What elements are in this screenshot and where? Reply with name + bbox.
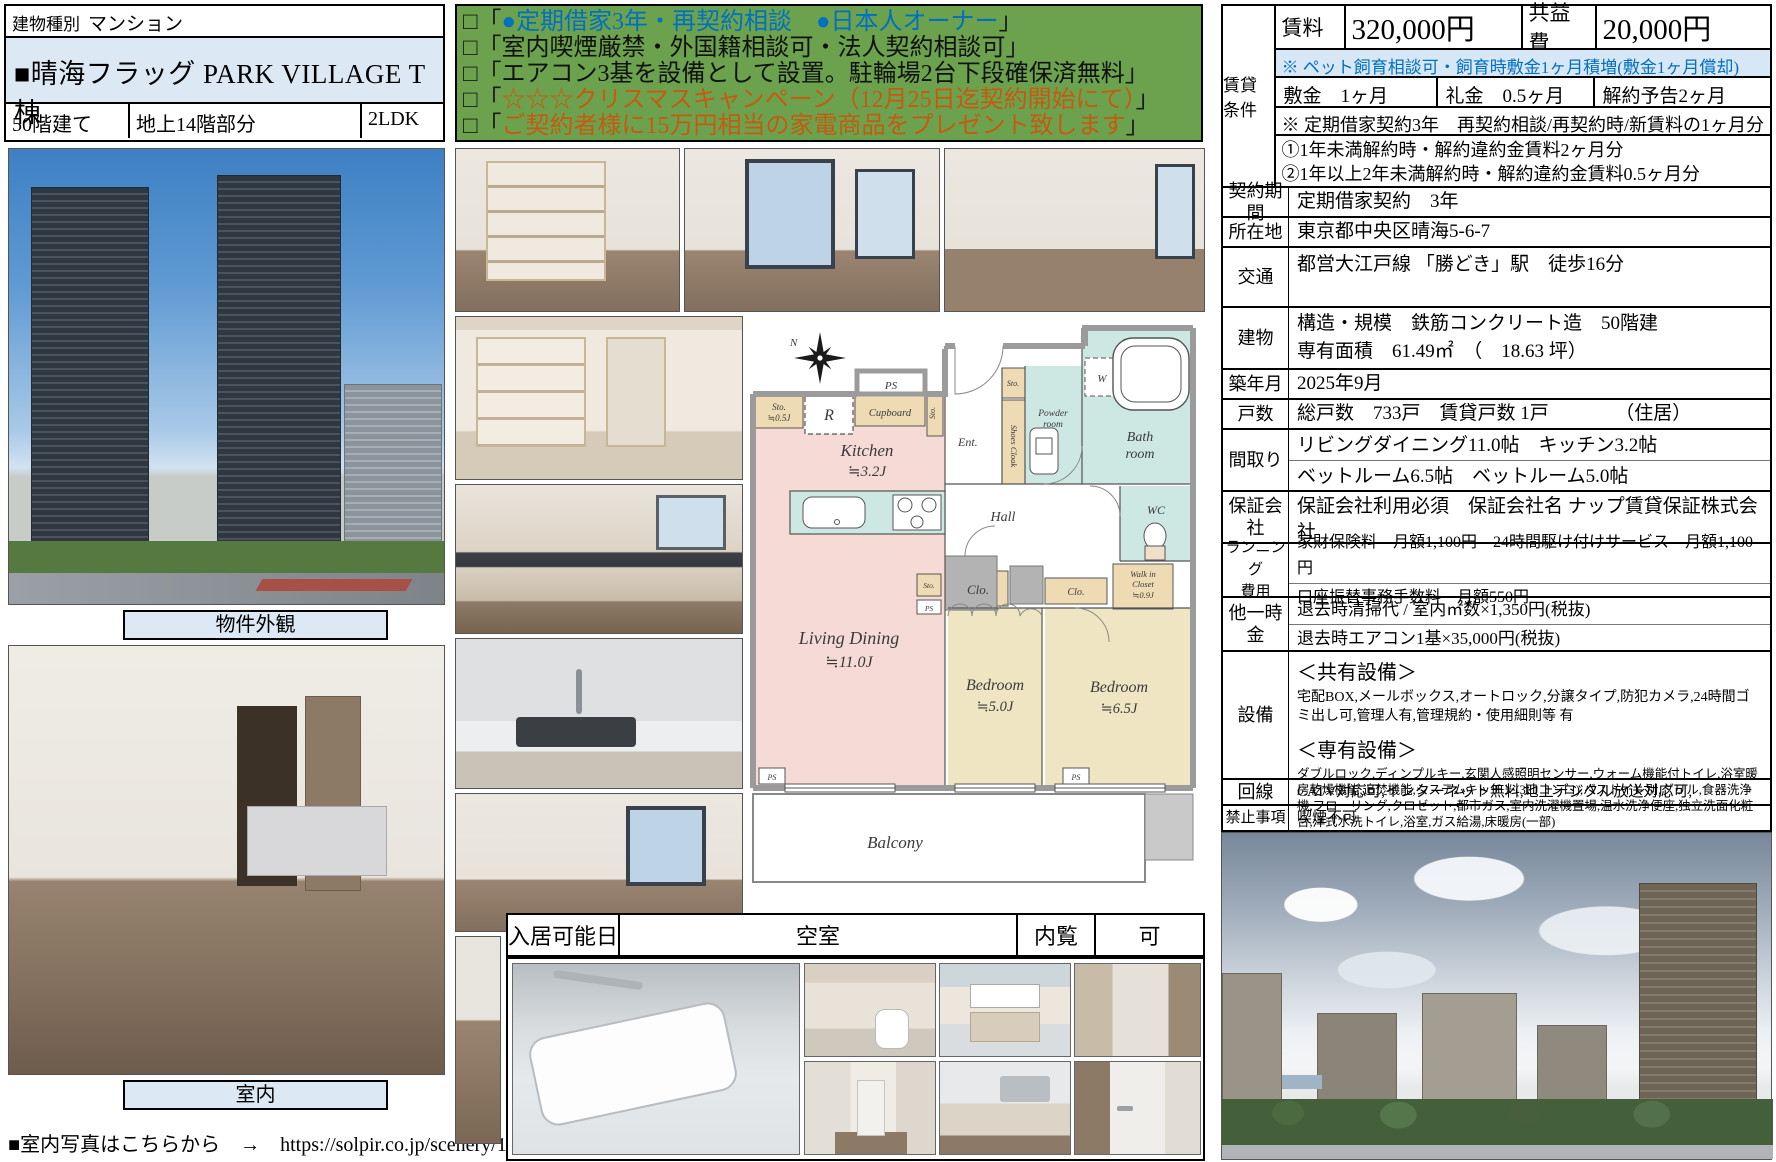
interior-photo: [8, 645, 445, 1075]
label-sto-entry: Sto.: [1007, 379, 1019, 388]
photo-toilet-room: [804, 963, 936, 1057]
row-building: 建物 構造・規模 鉄筋コンクリート造 50階建 専有面積 61.49㎡ （ 18…: [1223, 308, 1770, 370]
svg-text:≒6.5J: ≒6.5J: [1101, 701, 1138, 717]
svg-text:Closet: Closet: [1132, 579, 1154, 589]
row-address: 所在地 東京都中央区晴海5-6-7: [1223, 218, 1770, 248]
toilet: [875, 1009, 909, 1049]
promo-line-5: □「ご契約者様に15万円相当の家電商品をプレゼント致します」: [463, 113, 1195, 139]
kitchen-window: [656, 495, 726, 550]
window: [1155, 164, 1195, 259]
label-shoes-cloak: Shoes Cloak: [1009, 425, 1019, 467]
promo-line-4: □「☆☆☆クリスマスキャンペーン（12月25日迄契約開始にて）」: [463, 87, 1195, 113]
photo-closet: [455, 148, 680, 312]
tall-building: [1639, 883, 1757, 1101]
label-clo2: Clo.: [1068, 587, 1085, 598]
floor-plan: N PS Sto. ≒0.5J R Cupboard Sto. Kitchen …: [745, 316, 1197, 902]
label-ps-top: PS: [884, 380, 898, 392]
rent-value: 320,000円: [1346, 6, 1523, 48]
deposit-row: 敷金 1ヶ月 礼金 0.5ヶ月 解約予告2ヶ月: [1276, 78, 1771, 108]
pet-note: ※ ペット飼育相談可・飼育時敷金1ヶ月積増(敷金1ヶ月償却): [1276, 50, 1771, 78]
hall-door: [857, 1080, 885, 1136]
label-sto-mid: Sto.: [923, 581, 935, 590]
service-fee-label: 共益費: [1523, 6, 1597, 48]
label-wic: Walk in: [1130, 569, 1155, 579]
building-info-table: 建物種別マンション ■晴海フラッグ PARK VILLAGE T棟 50階建て …: [4, 4, 445, 142]
rental-conditions-table: 賃貸条件 賃料 320,000円 共益費 20,000円 ※ ペット飼育相談可・…: [1221, 4, 1772, 188]
viewing-label: 内覧: [1018, 915, 1096, 955]
row-units: 戸数 総戸数 733戸 賃貸戸数 1戸 （住居）: [1223, 400, 1770, 430]
promo-line-2: □「室内喫煙厳禁・外国籍相談可・法人契約相談可」: [463, 35, 1195, 61]
svg-text:≒3.2J: ≒3.2J: [848, 464, 887, 480]
label-w: W: [1097, 373, 1107, 385]
deposit: 敷金 1ヶ月: [1276, 78, 1438, 106]
renewal-note: ※ 定期借家契約3年 再契約相談/再契約時/新賃料の1ヶ月分: [1276, 108, 1771, 136]
vanity-drawers: [970, 1012, 1040, 1042]
photo-hallway: [804, 1061, 936, 1155]
penalty-2: ②1年以上2年未満解約時・解約違約金賃料0.5ヶ月分: [1282, 162, 1765, 186]
rent-row: 賃料 320,000円 共益費 20,000円: [1276, 6, 1771, 50]
row-built-date: 築年月 2025年9月: [1223, 370, 1770, 400]
tower-left: [31, 187, 149, 545]
label-ps-ld: PS: [924, 604, 934, 613]
label-r: R: [823, 407, 834, 424]
label-ps-bl: PS: [767, 773, 777, 782]
building-left: [1222, 973, 1282, 1103]
photo-washbasin: [939, 963, 1071, 1057]
building-type-row: 建物種別マンション: [6, 6, 443, 38]
spec-floor-part: 地上14階部分: [130, 104, 362, 138]
view-photo: [1221, 832, 1772, 1160]
bathtub: [526, 999, 740, 1129]
shared-facilities-header: ＜共有設備＞: [1289, 652, 1770, 687]
balcony-window: [745, 159, 835, 269]
row-prohibitions: 禁止事項 喫煙不可: [1223, 806, 1770, 832]
label-clo1: Clo.: [967, 582, 989, 597]
window: [855, 169, 915, 259]
penalty-1: ①1年未満解約時・解約違約金賃料2ヶ月分: [1282, 138, 1765, 162]
spec-floors: 50階建て: [6, 104, 130, 138]
photo-closet-door: [1074, 1061, 1201, 1155]
building-mid1: [1317, 1013, 1397, 1103]
property-title: ■晴海フラッグ PARK VILLAGE T棟: [6, 38, 443, 104]
label-kitchen: Kitchen: [840, 441, 894, 460]
label-powder: Powder: [1037, 409, 1068, 419]
rent-label: 賃料: [1276, 6, 1346, 48]
tower-right: [217, 175, 341, 545]
compass-icon: N: [789, 332, 846, 384]
row-layout: 間取り リビングダイニング11.0帖 キッチン3.2帖 ベットルーム6.5帖 ベ…: [1223, 430, 1770, 492]
availability-value: 空室: [620, 915, 1018, 955]
label-cupboard: Cupboard: [869, 408, 912, 419]
window: [626, 806, 706, 886]
photo-wood-room: [944, 148, 1205, 312]
caption-interior: 室内: [123, 1080, 388, 1110]
bottom-photo-grid: [506, 957, 1205, 1161]
cancel-notice: 解約予告2ヶ月: [1595, 78, 1771, 106]
open-cabinet: [476, 337, 586, 447]
photo-kitchen: [455, 484, 743, 634]
viewing-value: 可: [1096, 915, 1203, 955]
photo-living: [455, 793, 743, 932]
row-one-time-fees: 他一時金 退去時清掃代 / 室内㎡数×1,350円(税抜) 退去時エアコン1基×…: [1223, 598, 1770, 652]
row-transport: 交通 都営大江戸線 「勝どき」駅 徒歩16分: [1223, 248, 1770, 308]
bike-lane: [256, 579, 413, 591]
street: [1222, 1145, 1773, 1159]
promo-line-3: □「エアコン3基を設備として設置。駐輪場2台下段確保済無料」: [463, 61, 1195, 87]
label-sto05: Sto.: [772, 402, 786, 412]
shelves: [486, 161, 606, 281]
label-bedroom2: Bedroom: [1090, 679, 1148, 696]
grab-bar: [553, 970, 643, 990]
row-contract-period: 契約期間 定期借家契約 3年: [1223, 188, 1770, 218]
shared-facilities-text: 宅配BOX,メールボックス,オートロック,分譲タイプ,防犯カメラ,24時間ゴミ出…: [1289, 687, 1770, 730]
exterior-photo: [8, 148, 445, 605]
building-type-label: 建物種別: [12, 15, 80, 34]
water: [1282, 1075, 1322, 1089]
svg-text:N: N: [789, 337, 798, 349]
faucet: [576, 669, 582, 714]
spec-layout: 2LDK: [362, 104, 443, 138]
label-bedroom1: Bedroom: [966, 677, 1024, 694]
floor-plan-svg: N PS Sto. ≒0.5J R Cupboard Sto. Kitchen …: [745, 316, 1197, 902]
basin: [970, 984, 1040, 1008]
label-wc: WC: [1147, 503, 1166, 517]
availability-row: 入居可能日 空室 内覧 可: [506, 913, 1205, 957]
row-connection: 回線 CATV対応可,インターネット無料,地上デジタル放送対応可,: [1223, 780, 1770, 806]
label-balcony: Balcony: [867, 833, 923, 852]
promo-box: □「●定期借家3年・再契約相談 ●日本人オーナー」 □「室内喫煙厳禁・外国籍相談…: [455, 4, 1203, 142]
svg-text:room: room: [1043, 420, 1063, 430]
cabinet-door: [606, 337, 666, 447]
photo-cabinets: [455, 316, 743, 480]
trees: [1222, 1099, 1773, 1145]
photo-bathtub: [512, 963, 800, 1155]
promo-line-1: □「●定期借家3年・再契約相談 ●日本人オーナー」: [463, 9, 1195, 35]
svg-text:≒0.5J: ≒0.5J: [768, 413, 792, 423]
spec-row: 50階建て 地上14階部分 2LDK: [6, 104, 443, 138]
label-bath: Bath: [1127, 430, 1153, 445]
availability-label: 入居可能日: [508, 915, 620, 955]
label-ps-br: PS: [1071, 773, 1081, 782]
row-facilities: 設備 ＜共有設備＞ 宅配BOX,メールボックス,オートロック,分譲タイプ,防犯カ…: [1223, 652, 1770, 780]
building-mid3: [1537, 1025, 1607, 1103]
dish-rack: [1000, 1076, 1050, 1102]
kitchen-island: [247, 806, 387, 876]
key-money: 礼金 0.5ヶ月: [1438, 78, 1595, 106]
rental-conditions-label: 賃貸条件: [1223, 6, 1276, 186]
service-fee-value: 20,000円: [1597, 6, 1771, 48]
label-ent: Ent.: [957, 435, 978, 449]
building-mid: [344, 384, 442, 546]
building-mid2: [1422, 993, 1517, 1103]
row-running-costs: ランニング 費用 家財保険料 月額1,100円 24時間駆け付けサービス 月額1…: [1223, 544, 1770, 598]
property-flyer: 建物種別マンション ■晴海フラッグ PARK VILLAGE T棟 50階建て …: [0, 0, 1776, 1162]
property-details-table: 契約期間 定期借家契約 3年 所在地 東京都中央区晴海5-6-7 交通 都営大江…: [1221, 188, 1772, 834]
building-type-value: マンション: [88, 14, 183, 35]
photo-kitchen-sink: [455, 638, 743, 789]
greenery: [9, 541, 445, 575]
svg-text:≒11.0J: ≒11.0J: [825, 654, 873, 671]
door-handle: [1117, 1106, 1133, 1111]
penalty-notes: ①1年未満解約時・解約違約金賃料2ヶ月分 ②1年以上2年未満解約時・解約違約金賃…: [1276, 136, 1771, 188]
label-sto-vert: Sto.: [928, 407, 937, 419]
photo-kitchen-counter: [939, 1061, 1071, 1155]
photo-living-balcony: [684, 148, 940, 312]
photo-room-corner: [455, 936, 501, 1144]
caption-exterior: 物件外観: [123, 610, 388, 640]
svg-text:≒0.9J: ≒0.9J: [1132, 590, 1155, 600]
svg-text:≒5.0J: ≒5.0J: [977, 699, 1014, 715]
photo-mirror-closet: [1074, 963, 1201, 1057]
svg-text:room: room: [1125, 447, 1154, 462]
sink-basin: [516, 717, 636, 747]
label-living: Living Dining: [798, 628, 900, 648]
private-facilities-header: ＜専有設備＞: [1289, 730, 1770, 765]
label-hall: Hall: [990, 510, 1016, 525]
